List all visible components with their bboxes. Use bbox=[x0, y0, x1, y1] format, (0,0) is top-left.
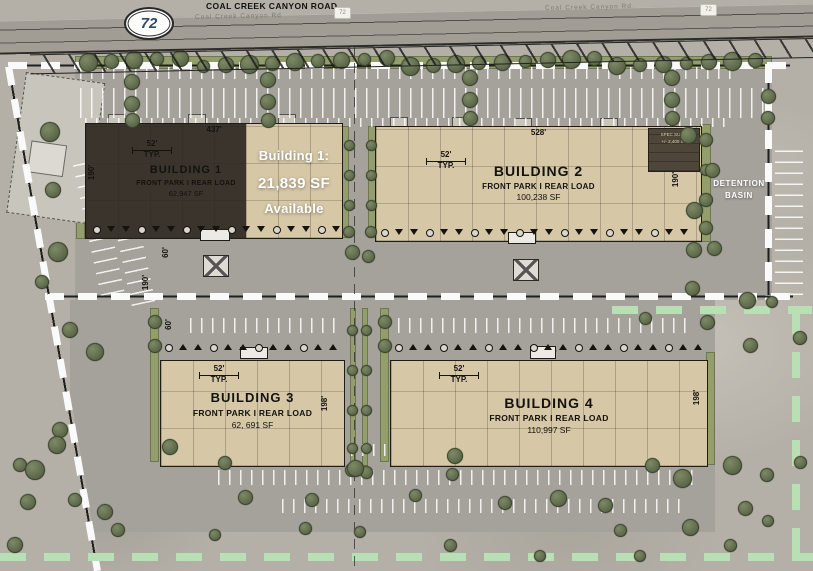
dock-column-marker bbox=[440, 344, 448, 352]
building-1-bay-dim: 52' TYP. bbox=[124, 140, 180, 160]
building-4-name: BUILDING 4 bbox=[391, 395, 707, 411]
phase-line-middle bbox=[45, 293, 793, 300]
route-number: 72 bbox=[141, 15, 158, 32]
dimension-line bbox=[439, 375, 479, 376]
tree bbox=[699, 221, 713, 235]
building-3-name: BUILDING 3 bbox=[161, 391, 344, 406]
dock-door-marker bbox=[269, 344, 277, 350]
tree bbox=[45, 182, 61, 198]
dock-door-marker bbox=[499, 344, 507, 350]
tree bbox=[686, 202, 703, 219]
tree bbox=[365, 226, 377, 238]
tree bbox=[25, 460, 45, 480]
tree bbox=[462, 92, 478, 108]
dock-door-marker bbox=[107, 226, 115, 232]
tree bbox=[20, 494, 36, 510]
building-4: 561' 52' TYP. 198' BUILDING 4 FRONT PARK… bbox=[390, 360, 708, 467]
tree bbox=[682, 519, 699, 536]
tree bbox=[366, 140, 377, 151]
tree bbox=[347, 443, 358, 454]
tree bbox=[743, 338, 758, 353]
dock-door-marker bbox=[455, 229, 463, 235]
route-marker-icon: 72 bbox=[334, 7, 351, 19]
dock-door-marker bbox=[635, 229, 643, 235]
tree bbox=[598, 498, 613, 513]
tree bbox=[347, 405, 358, 416]
tree bbox=[299, 522, 312, 535]
route-72-shield: 72 bbox=[124, 7, 174, 40]
dock-column-marker bbox=[318, 226, 326, 234]
tree bbox=[673, 469, 692, 488]
dock-door-marker bbox=[485, 229, 493, 235]
dock-column-marker bbox=[516, 229, 524, 237]
dock-door-marker bbox=[224, 344, 232, 350]
tree bbox=[366, 170, 377, 181]
dock-door-marker bbox=[395, 229, 403, 235]
tree bbox=[766, 296, 778, 308]
tree bbox=[344, 170, 355, 181]
dock-door-marker bbox=[329, 344, 337, 350]
dock-column-marker bbox=[381, 229, 389, 237]
tree bbox=[148, 315, 162, 329]
dock-column-marker bbox=[210, 344, 218, 352]
tree bbox=[48, 242, 68, 262]
dock-door-marker bbox=[410, 229, 418, 235]
dock-column-marker bbox=[606, 229, 614, 237]
dock-column-marker bbox=[165, 344, 173, 352]
tree bbox=[111, 523, 125, 537]
dock-column-marker bbox=[93, 226, 101, 234]
tree bbox=[7, 537, 23, 553]
dock-column-marker bbox=[575, 344, 583, 352]
tree bbox=[40, 122, 60, 142]
south-court-dim: 60' bbox=[164, 319, 173, 330]
dock-column-marker bbox=[426, 229, 434, 237]
tree bbox=[361, 443, 372, 454]
dock-door-marker bbox=[167, 226, 175, 232]
tree bbox=[361, 365, 372, 376]
landscape-strip-b3-west bbox=[150, 308, 159, 462]
green-boundary-south bbox=[0, 553, 813, 561]
parking-stripes bbox=[282, 499, 687, 513]
tree bbox=[534, 550, 546, 562]
dock-door-marker bbox=[559, 344, 567, 350]
tree bbox=[761, 89, 776, 104]
availability-building: Building 1: bbox=[246, 148, 342, 163]
dock-door-marker bbox=[242, 226, 250, 232]
tree bbox=[723, 456, 742, 475]
dock-door-marker bbox=[620, 229, 628, 235]
dock-door-marker bbox=[332, 226, 340, 232]
tree bbox=[447, 448, 463, 464]
tree bbox=[261, 113, 276, 128]
tree bbox=[260, 72, 276, 88]
tree bbox=[347, 460, 364, 477]
building-4-bay-dim: 52' TYP. bbox=[431, 365, 487, 385]
tree bbox=[62, 322, 78, 338]
dock-door-marker bbox=[239, 344, 247, 350]
building-1-width-dim: 437' bbox=[86, 125, 342, 134]
north-court-dim: 60' bbox=[161, 247, 170, 258]
tree bbox=[124, 96, 140, 112]
parking-stripes bbox=[775, 150, 803, 295]
dock-door-marker bbox=[302, 226, 310, 232]
green-boundary-east bbox=[792, 308, 800, 566]
dock-column-marker bbox=[665, 344, 673, 352]
dock-column-marker bbox=[561, 229, 569, 237]
tree bbox=[378, 315, 392, 329]
building-3-depth-dim: 198' bbox=[320, 396, 329, 411]
dock-door-marker bbox=[665, 229, 673, 235]
building-1-availability[interactable]: Building 1: 21,839 SF Available bbox=[246, 148, 342, 216]
tree bbox=[345, 245, 360, 260]
dock-column-marker bbox=[300, 344, 308, 352]
availability-size: 21,839 SF bbox=[246, 175, 342, 192]
road-name-label: COAL CREEK CANYON ROAD bbox=[206, 1, 337, 11]
dock-door-marker bbox=[589, 344, 597, 350]
tree bbox=[645, 458, 660, 473]
dock-column-marker bbox=[228, 226, 236, 234]
dock-door-marker bbox=[514, 344, 522, 350]
dock-door-marker bbox=[440, 229, 448, 235]
detention-basin-label: DETENTION BASIN bbox=[703, 178, 775, 202]
tree bbox=[614, 524, 627, 537]
dock-door-marker bbox=[212, 226, 220, 232]
dock-door-marker bbox=[424, 344, 432, 350]
tree bbox=[444, 539, 457, 552]
tree bbox=[362, 250, 375, 263]
tree bbox=[686, 242, 702, 258]
site-plan-canvas: 437' 52' TYP. 190' BUILDING 1 FRONT PARK… bbox=[0, 0, 813, 571]
tree bbox=[97, 504, 113, 520]
dimension-line bbox=[199, 375, 239, 376]
dock-door-marker bbox=[197, 226, 205, 232]
tree bbox=[738, 501, 753, 516]
building-3-area: 62, 691 SF bbox=[161, 421, 344, 431]
dock-door-marker bbox=[545, 229, 553, 235]
dock-column-marker bbox=[183, 226, 191, 234]
dock-door-marker bbox=[257, 226, 265, 232]
tree bbox=[162, 439, 178, 455]
dock-door-marker bbox=[649, 344, 657, 350]
tree bbox=[664, 92, 680, 108]
tree bbox=[463, 111, 478, 126]
tree bbox=[361, 405, 372, 416]
dock-door-marker bbox=[469, 344, 477, 350]
tree bbox=[305, 493, 319, 507]
route-marker-number: 72 bbox=[339, 10, 346, 16]
tree bbox=[761, 111, 775, 125]
dock-door-marker bbox=[500, 229, 508, 235]
building-3-loadtype: FRONT PARK I REAR LOAD bbox=[161, 409, 344, 419]
building-1: 437' 52' TYP. 190' BUILDING 1 FRONT PARK… bbox=[85, 123, 343, 239]
tree bbox=[344, 200, 355, 211]
building-2: 528' 52' TYP. 190' BUILDING 2 FRONT PARK… bbox=[375, 126, 702, 242]
tree bbox=[724, 539, 737, 552]
tree bbox=[409, 489, 422, 502]
availability-status: Available bbox=[246, 201, 342, 216]
tree bbox=[550, 490, 567, 507]
trash-enclosure-1 bbox=[203, 255, 229, 277]
tree bbox=[86, 343, 104, 361]
dock-column-marker bbox=[651, 229, 659, 237]
section-centerline bbox=[354, 46, 355, 571]
tree bbox=[354, 526, 366, 538]
tree bbox=[238, 490, 253, 505]
tree bbox=[48, 436, 66, 454]
dock-door-marker bbox=[122, 226, 130, 232]
building-2-width-dim: 528' bbox=[376, 128, 701, 137]
tree bbox=[739, 292, 756, 309]
dock-column-marker bbox=[620, 344, 628, 352]
tree bbox=[35, 275, 49, 289]
dock-column-marker bbox=[485, 344, 493, 352]
building-1-depth-dim: 190' bbox=[87, 165, 96, 180]
tree bbox=[446, 468, 459, 481]
route-marker-icon: 72 bbox=[700, 4, 717, 16]
dock-door-marker bbox=[590, 229, 598, 235]
dock-column-marker bbox=[255, 344, 263, 352]
tree bbox=[707, 241, 722, 256]
trash-enclosure-2 bbox=[513, 259, 539, 281]
building-2-area: 100,238 SF bbox=[376, 193, 701, 203]
dimension-line bbox=[132, 150, 172, 151]
tree bbox=[680, 127, 697, 144]
tree bbox=[124, 74, 140, 90]
tree bbox=[685, 281, 700, 296]
tree bbox=[665, 111, 680, 126]
building-2-bay-dim: 52' TYP. bbox=[418, 151, 474, 171]
dock-door-marker bbox=[634, 344, 642, 350]
dimension-line bbox=[426, 161, 466, 162]
tree bbox=[125, 113, 140, 128]
tree bbox=[762, 515, 774, 527]
dock-door-marker bbox=[284, 344, 292, 350]
tree bbox=[462, 70, 478, 86]
building-4-area: 110,997 SF bbox=[391, 426, 707, 436]
dock-door-marker bbox=[604, 344, 612, 350]
tree bbox=[794, 456, 807, 469]
parking-stripes bbox=[190, 318, 340, 333]
dock-door-marker bbox=[409, 344, 417, 350]
tree bbox=[705, 163, 720, 178]
route-marker-number: 72 bbox=[705, 7, 712, 13]
dock-column-marker bbox=[395, 344, 403, 352]
dock-door-marker bbox=[530, 229, 538, 235]
tree bbox=[343, 226, 355, 238]
dock-door-marker bbox=[454, 344, 462, 350]
building-3-label: BUILDING 3 FRONT PARK I REAR LOAD 62, 69… bbox=[161, 391, 344, 430]
tree bbox=[793, 331, 807, 345]
dock-door-marker bbox=[575, 229, 583, 235]
detention-line1: DETENTION bbox=[703, 178, 775, 190]
building-4-loadtype: FRONT PARK I REAR LOAD bbox=[391, 414, 707, 424]
tree bbox=[209, 529, 221, 541]
tree bbox=[347, 325, 358, 336]
tree bbox=[361, 325, 372, 336]
building-2-loadtype: FRONT PARK I REAR LOAD bbox=[376, 182, 701, 191]
dock-door-marker bbox=[179, 344, 187, 350]
building-3: 317' 52' TYP. 198' BUILDING 3 FRONT PARK… bbox=[160, 360, 345, 467]
building-3-bay-dim: 52' TYP. bbox=[191, 365, 247, 385]
tree bbox=[148, 339, 162, 353]
dock-door-marker bbox=[194, 344, 202, 350]
dock-door-marker bbox=[287, 226, 295, 232]
building-4-depth-dim: 198' bbox=[692, 390, 701, 405]
detention-line2: BASIN bbox=[703, 190, 775, 202]
dock-door-marker bbox=[680, 229, 688, 235]
dock-door-marker bbox=[152, 226, 160, 232]
dock-door-marker bbox=[679, 344, 687, 350]
dock-column-marker bbox=[138, 226, 146, 234]
tree bbox=[366, 200, 377, 211]
tree bbox=[700, 315, 715, 330]
tree bbox=[260, 94, 276, 110]
dock-door-marker bbox=[694, 344, 702, 350]
tree bbox=[760, 468, 774, 482]
building-2-depth-dim: 190' bbox=[671, 172, 680, 187]
tree bbox=[498, 496, 512, 510]
tree bbox=[68, 493, 82, 507]
tree bbox=[699, 133, 713, 147]
tree bbox=[218, 456, 232, 470]
drive-aisle-dim: 190' bbox=[141, 275, 150, 290]
tree bbox=[378, 339, 392, 353]
building-4-label: BUILDING 4 FRONT PARK I REAR LOAD 110,99… bbox=[391, 395, 707, 436]
tree bbox=[344, 140, 355, 151]
existing-structure-pad bbox=[27, 140, 67, 177]
dock-column-marker bbox=[273, 226, 281, 234]
dock-column-marker bbox=[471, 229, 479, 237]
tree bbox=[639, 312, 652, 325]
dock-door-marker bbox=[314, 344, 322, 350]
dock-door-marker bbox=[544, 344, 552, 350]
tree bbox=[634, 550, 646, 562]
dock-column-marker bbox=[530, 344, 538, 352]
tree bbox=[347, 365, 358, 376]
landscape-strip-b4-west2 bbox=[380, 308, 389, 462]
